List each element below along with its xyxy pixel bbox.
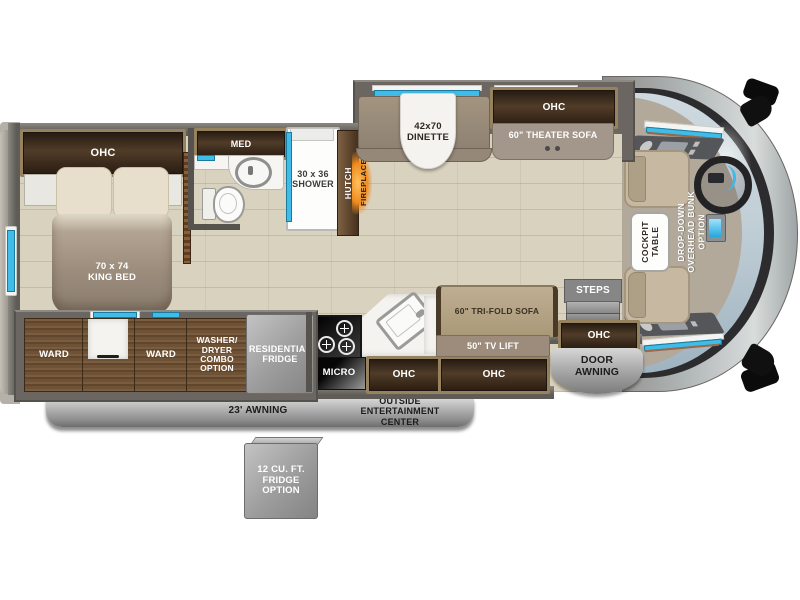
pillow-icon — [113, 167, 169, 219]
cupholder-icon — [555, 146, 560, 151]
dresser-top — [88, 319, 128, 359]
dinette-label: 42x70 DINETTE — [401, 122, 455, 143]
outside-entertainment-label: OUTSIDE ENTERTAINMENT CENTER — [340, 396, 460, 427]
toilet-seat-icon — [219, 193, 237, 214]
console-screen-icon — [709, 219, 721, 237]
shower-label: 30 x 36 SHOWER — [292, 169, 334, 189]
stove — [312, 315, 362, 359]
burner-icon — [336, 320, 353, 337]
vanity-window — [197, 155, 215, 161]
steering-accent-icon — [723, 165, 736, 191]
kitchen-ohc-left-label: OHC — [393, 369, 416, 380]
cupholder-icon — [545, 146, 550, 151]
washer-dryer-label: WASHER/ DRYER COMBO OPTION — [196, 336, 237, 373]
door-awning-label: DOOR AWNING — [551, 355, 643, 379]
king-bed-label: 70 x 74 KING BED — [88, 262, 136, 283]
med-cabinet-label: MED — [231, 139, 252, 149]
shower-glass-edge — [286, 132, 292, 222]
fridge-option-box: 12 CU. FT. FRIDGE OPTION — [244, 443, 318, 519]
tri-fold-sofa: 60" TRI-FOLD SOFA — [436, 285, 558, 337]
washer-dryer: WASHER/ DRYER COMBO OPTION — [186, 318, 248, 392]
ward-right: WARD — [134, 318, 188, 392]
bedroom-ohc-label: OHC — [90, 147, 115, 159]
faucet-icon — [248, 166, 253, 175]
theater-ohc-label: OHC — [543, 102, 566, 113]
kitchen-ohc-left: OHC — [366, 356, 442, 394]
bathroom-sink-icon — [235, 157, 272, 188]
dash-buttons-icon — [690, 321, 698, 326]
micro-label: MICRO — [323, 368, 356, 379]
toilet-bowl-icon — [213, 186, 245, 223]
theater-sofa-label: 60" THEATER SOFA — [493, 130, 613, 140]
microwave: MICRO — [312, 357, 366, 390]
residential-fridge: RESIDENTIAL FRIDGE — [246, 314, 314, 394]
kitchen-ohc-right-label: OHC — [483, 369, 506, 380]
burner-icon — [338, 338, 355, 355]
nightstand-left — [24, 174, 60, 206]
ward-right-label: WARD — [146, 350, 176, 361]
cockpit-table-label: COCKPIT TABLE — [640, 221, 660, 263]
sink-basin-icon — [385, 304, 421, 338]
fireplace: FIREPLACE — [356, 154, 370, 212]
dash-buttons-icon — [693, 142, 701, 147]
burner-icon — [318, 336, 335, 353]
dresser — [82, 318, 136, 392]
overhead-bunk-option: DROP-DOWN OVERHEAD BUNK OPTION — [674, 186, 708, 278]
bed-pillows — [56, 167, 168, 219]
rv-floorplan: 23' AWNING OUTSIDE ENTERTAINMENT CENTER … — [0, 0, 800, 600]
steering-hub-icon — [708, 173, 724, 183]
driver-seat-back — [628, 156, 646, 202]
kitchen-partition-wall — [306, 312, 312, 392]
fireplace-label: FIREPLACE — [359, 159, 368, 206]
awning-label: 23' AWNING — [178, 405, 338, 416]
entry-steps: STEPS — [564, 279, 622, 303]
tv-lift-label: 50" TV LIFT — [467, 341, 519, 351]
dash-buttons-icon — [688, 150, 696, 155]
residential-fridge-label: RESIDENTIAL FRIDGE — [249, 344, 311, 364]
ward-left-label: WARD — [39, 350, 69, 361]
shower-door-icon — [290, 128, 334, 141]
ward-left: WARD — [24, 318, 84, 392]
king-bed: 70 x 74 KING BED — [52, 214, 172, 314]
bath-wall-horizontal — [188, 224, 240, 230]
tv-lift: 50" TV LIFT — [436, 335, 550, 357]
passenger-seat-back — [628, 272, 646, 318]
theater-sofa: 60" THEATER SOFA — [492, 123, 614, 160]
entry-ohc-label: OHC — [588, 330, 611, 341]
tri-fold-sofa-label: 60" TRI-FOLD SOFA — [455, 307, 539, 317]
kitchen-ohc-right: OHC — [438, 356, 550, 394]
cockpit-table: COCKPIT TABLE — [630, 212, 670, 272]
dresser-handle-icon — [97, 355, 119, 358]
overhead-bunk-label: DROP-DOWN OVERHEAD BUNK OPTION — [676, 191, 707, 273]
dinette-table: 42x70 DINETTE — [400, 93, 456, 169]
center-console — [706, 214, 726, 242]
pillow-icon — [56, 167, 112, 219]
rear-window — [7, 230, 15, 292]
fridge-option-label: 12 CU. FT. FRIDGE OPTION — [257, 465, 304, 497]
steps-label: STEPS — [576, 285, 610, 296]
shower: 30 x 36 SHOWER — [286, 127, 340, 231]
